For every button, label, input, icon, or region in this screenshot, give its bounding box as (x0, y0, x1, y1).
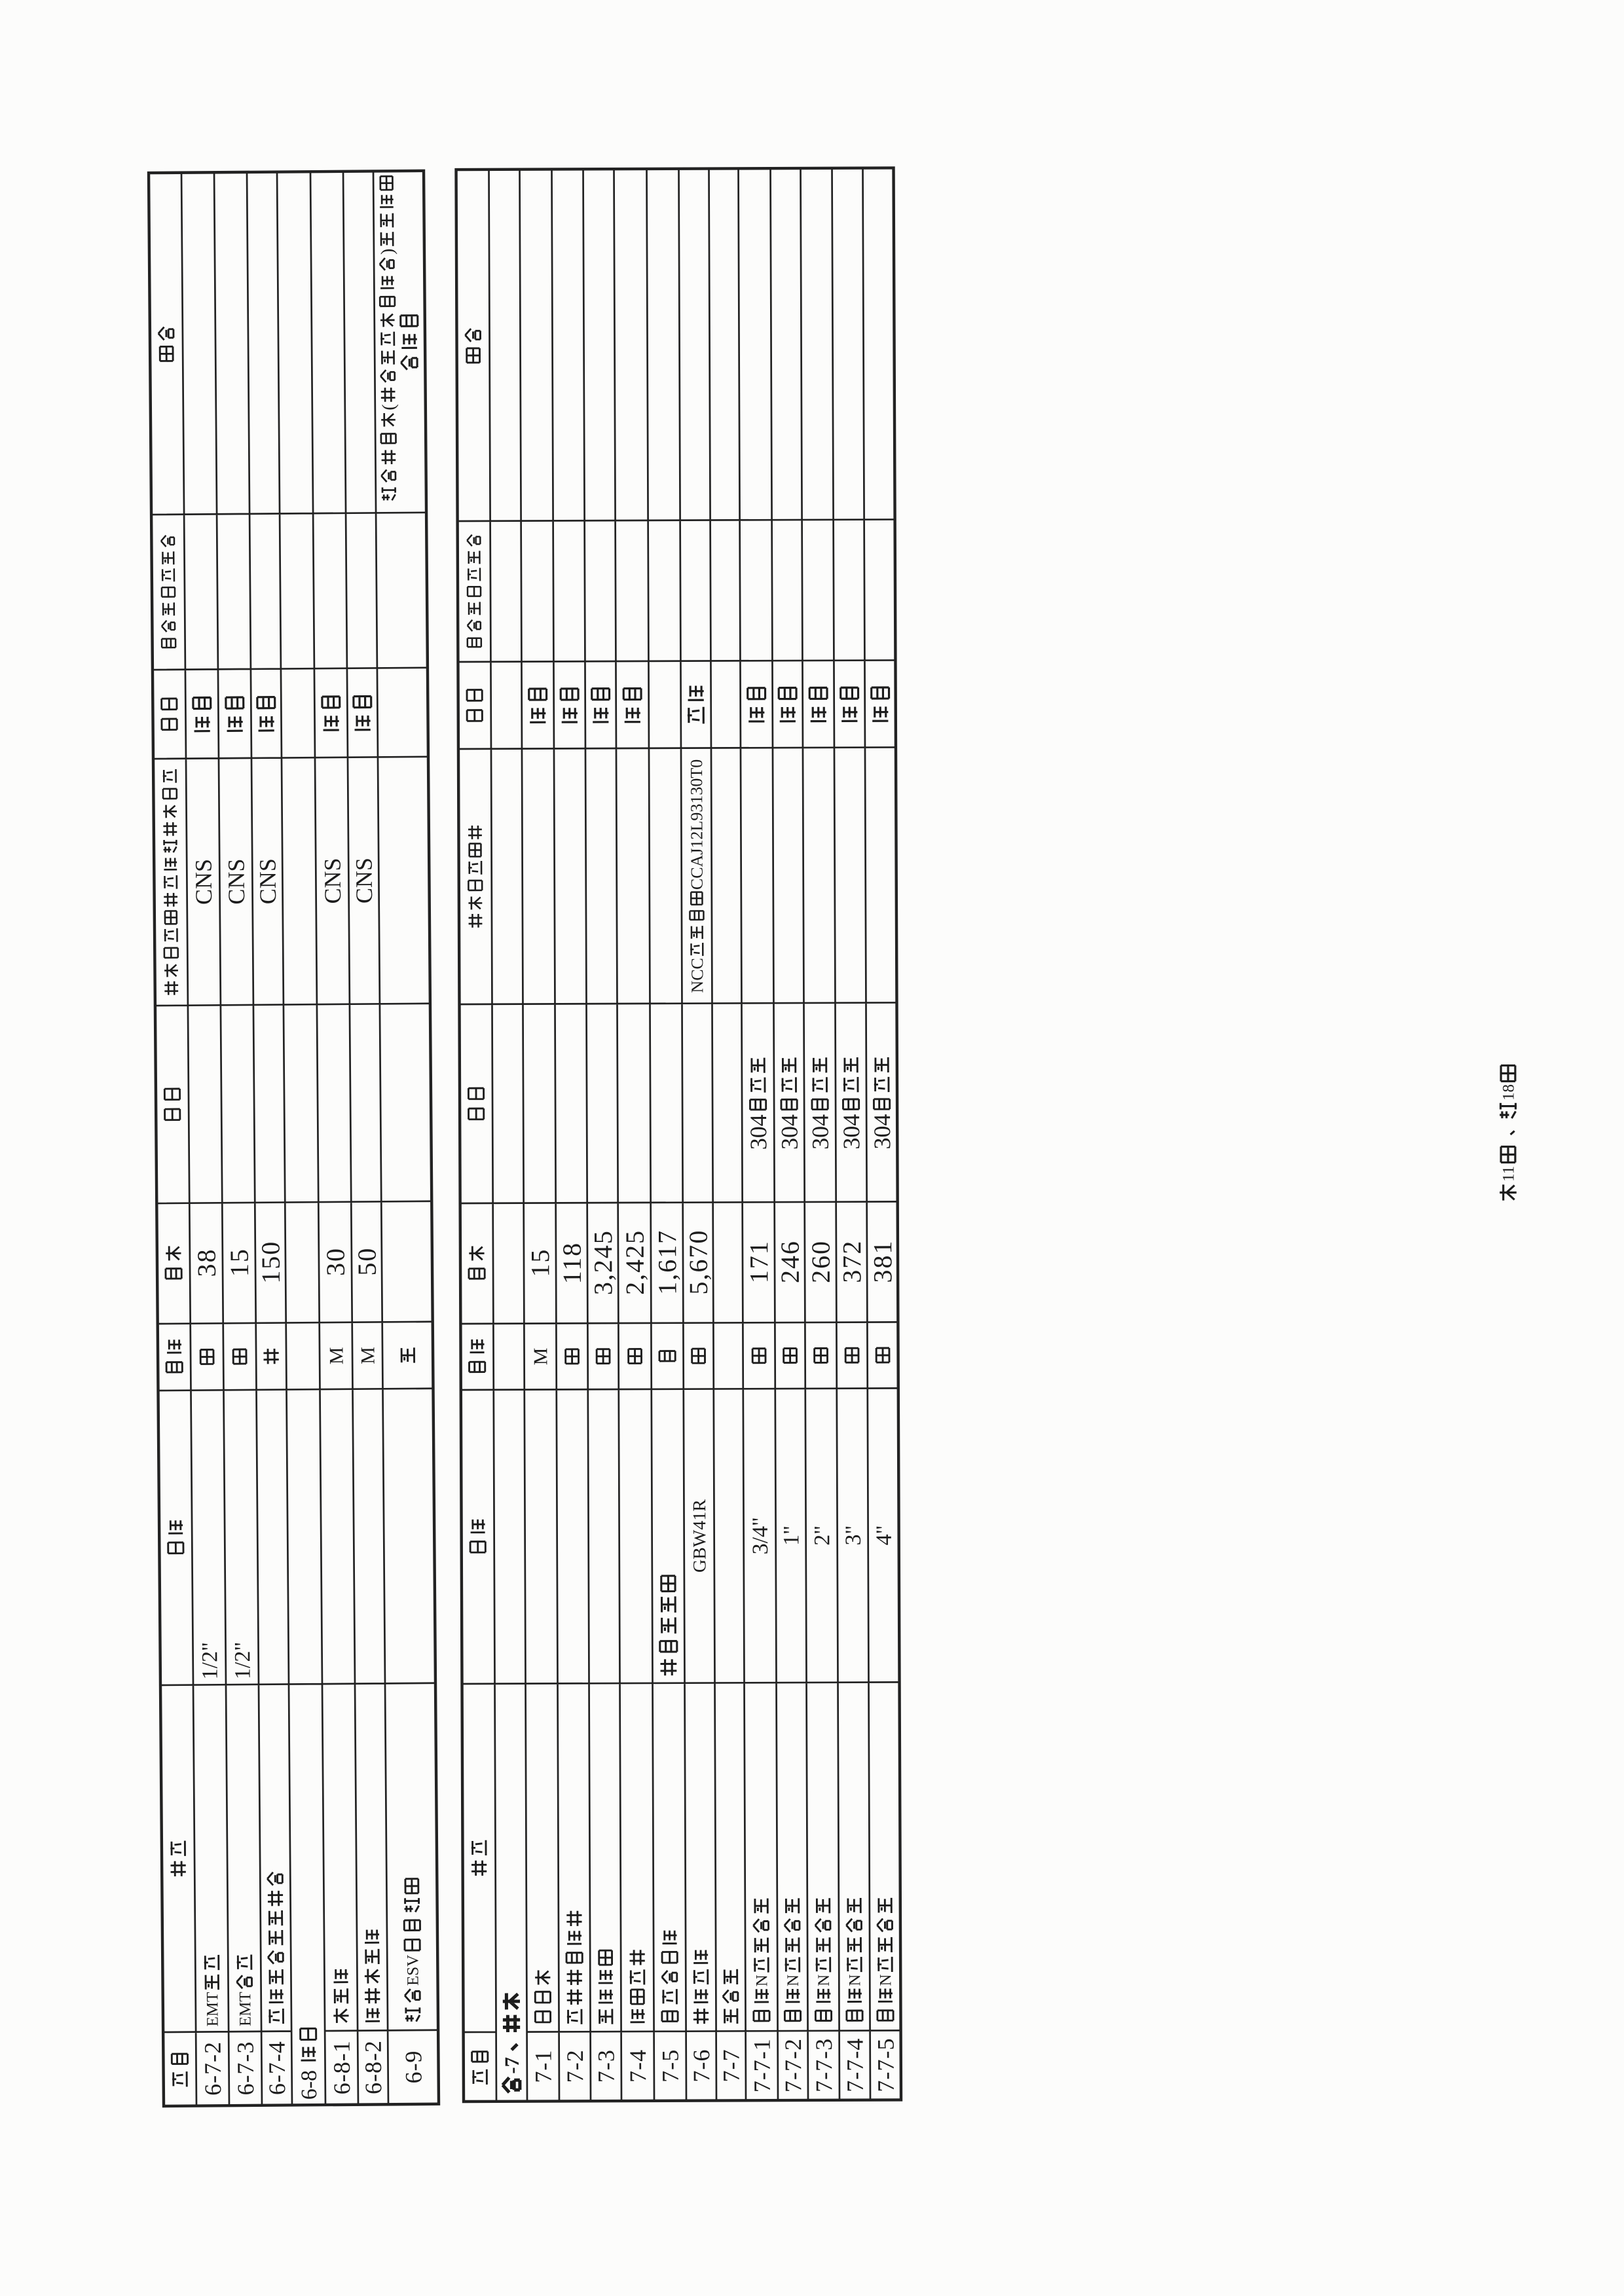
svg-text:7-7-5: 7-7-5 (873, 2037, 899, 2092)
svg-text:381: 381 (868, 1239, 897, 1283)
svg-text:M: M (530, 1348, 551, 1366)
svg-text:1/2": 1/2" (198, 1642, 222, 1680)
svg-text:7-2: 7-2 (562, 2049, 588, 2083)
svg-text:M: M (325, 1347, 347, 1364)
svg-text:7-6: 7-6 (688, 2049, 714, 2083)
svg-text:304: 304 (807, 1114, 834, 1150)
svg-text:1,617: 1,617 (652, 1230, 682, 1295)
svg-text:6-8-2: 6-8-2 (360, 2040, 387, 2094)
svg-text:38: 38 (192, 1248, 221, 1277)
svg-text:7-3: 7-3 (593, 2049, 619, 2083)
svg-text:6-9: 6-9 (400, 2050, 426, 2083)
svg-text:3,245: 3,245 (588, 1230, 618, 1295)
svg-text:246: 246 (775, 1240, 805, 1283)
svg-text:N: N (784, 1975, 802, 1986)
svg-text:171: 171 (744, 1240, 773, 1283)
svg-text:N: N (877, 1974, 895, 1986)
svg-text:6-7-2: 6-7-2 (200, 2041, 227, 2096)
svg-text:3": 3" (841, 1525, 866, 1546)
svg-text:2": 2" (810, 1525, 834, 1546)
svg-text:N: N (753, 1975, 771, 1986)
svg-text:CCAJ12L93130T0: CCAJ12L93130T0 (687, 759, 707, 890)
svg-text:GBW41R: GBW41R (690, 1499, 710, 1573)
svg-text:1": 1" (779, 1525, 803, 1546)
svg-text:7-5: 7-5 (657, 2049, 684, 2083)
svg-text:2,425: 2,425 (620, 1230, 650, 1295)
svg-text:): ) (378, 248, 398, 255)
svg-text:6-7-3: 6-7-3 (232, 2041, 259, 2095)
svg-text:15: 15 (225, 1248, 254, 1277)
svg-text:150: 150 (256, 1241, 286, 1284)
svg-text:304: 304 (777, 1114, 803, 1150)
svg-text:7-7: 7-7 (718, 2049, 745, 2082)
svg-text:4": 4" (872, 1525, 896, 1545)
svg-text:CNS: CNS (223, 858, 250, 904)
svg-text:(: ( (378, 404, 399, 410)
svg-text:5,670: 5,670 (684, 1230, 713, 1295)
svg-text:304: 304 (745, 1114, 771, 1150)
svg-text:15: 15 (525, 1248, 555, 1277)
svg-text:118: 118 (557, 1242, 587, 1285)
svg-text:N: N (815, 1975, 833, 1986)
svg-text:6-8-1: 6-8-1 (329, 2040, 356, 2094)
svg-text:7-1: 7-1 (530, 2049, 557, 2083)
svg-text:50: 50 (352, 1247, 382, 1275)
svg-text:EMT: EMT (236, 1992, 254, 2026)
svg-text:260: 260 (806, 1240, 836, 1283)
svg-text:7-7-2: 7-7-2 (780, 2038, 806, 2092)
svg-text:1/2": 1/2" (231, 1642, 255, 1680)
svg-text:M: M (357, 1347, 378, 1364)
svg-text:7-4: 7-4 (625, 2049, 651, 2083)
svg-text:N: N (846, 1975, 864, 1986)
svg-text:CNS: CNS (351, 858, 378, 903)
svg-text:7-7-3: 7-7-3 (811, 2038, 837, 2092)
svg-text:EMT: EMT (204, 1992, 221, 2027)
svg-text:NCC: NCC (688, 958, 707, 993)
svg-text:6-8: 6-8 (297, 2070, 322, 2100)
svg-text:18: 18 (1500, 1084, 1518, 1101)
svg-text:3/4": 3/4" (748, 1517, 773, 1554)
svg-text:304: 304 (838, 1114, 864, 1150)
svg-text:CNS: CNS (255, 858, 282, 904)
svg-text:-7: -7 (500, 2057, 523, 2074)
svg-text:372: 372 (837, 1240, 866, 1283)
svg-text:30: 30 (321, 1247, 350, 1276)
svg-text:304: 304 (869, 1114, 895, 1149)
svg-text:7-7-4: 7-7-4 (842, 2038, 868, 2092)
svg-text:ESV: ESV (404, 1955, 422, 1986)
svg-text:CNS: CNS (320, 858, 346, 903)
svg-text:7-7-1: 7-7-1 (749, 2038, 775, 2092)
svg-text:CNS: CNS (191, 859, 217, 905)
svg-text:6-7-4: 6-7-4 (264, 2041, 291, 2095)
svg-text:11: 11 (1500, 1166, 1518, 1182)
